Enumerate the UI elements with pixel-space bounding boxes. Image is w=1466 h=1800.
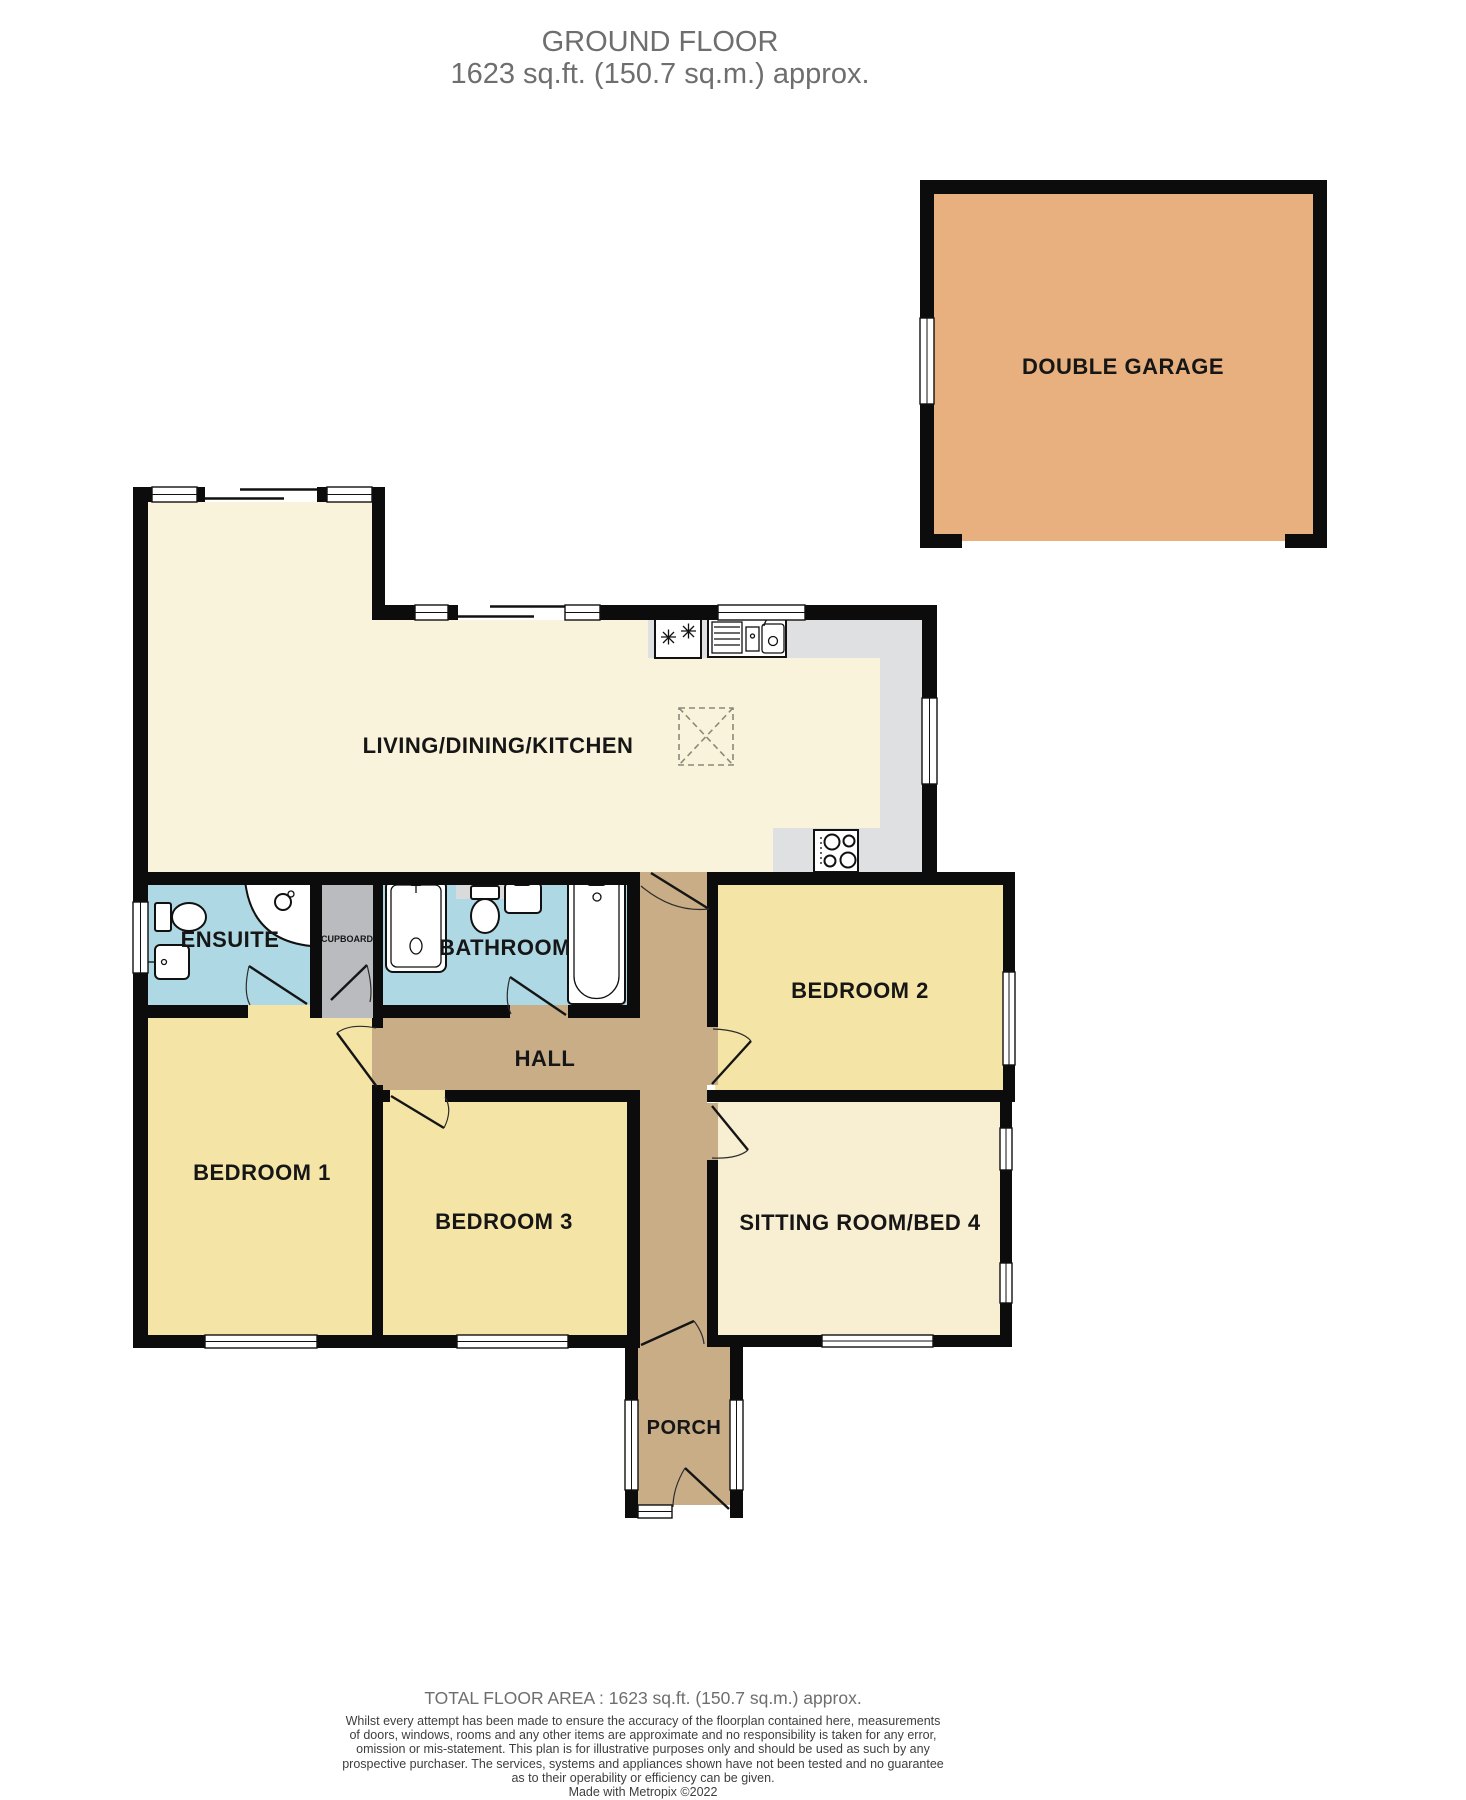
fridge-freezer-icon [655,616,701,658]
room-label-bathroom: BATHROOM [439,935,571,960]
room-label-porch: PORCH [647,1417,722,1439]
room-label-cupboard: CUPBOARD [321,934,374,944]
window [457,1335,568,1348]
window [565,605,600,620]
window [1000,1263,1012,1303]
window [730,1400,743,1490]
room-hall-band [380,1016,642,1092]
room-label-living-dining-kitchen: LIVING/DINING/KITCHEN [363,733,634,758]
floorplan-canvas: DOUBLE GARAGE LIVING/DINING/KITCHEN ENSU… [0,0,1466,1800]
window [205,1335,317,1348]
window [920,318,934,404]
hob-icon [814,830,858,872]
credit-line: Made with Metropix ©2022 [0,1785,1286,1799]
disclaimer-line: prospective purchaser. The services, sys… [0,1757,1286,1771]
floorplan-page: GROUND FLOOR 1623 sq.ft. (150.7 sq.m.) a… [0,0,1466,1800]
room-label-bedroom-3: BEDROOM 3 [435,1209,573,1234]
window [625,1400,638,1490]
window [922,698,937,784]
toilet-icon [471,886,499,933]
window [327,487,372,502]
room-label-sitting-room-bed-4: SITTING ROOM/BED 4 [739,1210,981,1235]
room-cupboard [315,880,375,1008]
room-label-ensuite: ENSUITE [181,927,280,952]
room-label-bedroom-2: BEDROOM 2 [791,978,929,1003]
room-fills [140,187,1320,1510]
room-label-double-garage: DOUBLE GARAGE [1022,354,1224,379]
window [1003,972,1015,1065]
sliding-door-icon [458,605,565,620]
kitchen-sink-icon [708,617,786,657]
shower-tray-icon [386,877,446,972]
disclaimer: Whilst every attempt has been made to en… [0,1714,1286,1799]
window [415,605,448,620]
room-living-dining-kitchen [140,495,930,878]
disclaimer-line: Whilst every attempt has been made to en… [0,1714,1286,1728]
sliding-door-icon [205,487,317,502]
bathtub-icon [568,876,625,1004]
total-floor-area: TOTAL FLOOR AREA : 1623 sq.ft. (150.7 sq… [0,1688,1286,1709]
disclaimer-line: omission or mis-statement. This plan is … [0,1742,1286,1756]
window [152,487,197,502]
window [638,1505,672,1518]
window [718,605,805,620]
disclaimer-line: of doors, windows, rooms and any other i… [0,1728,1286,1742]
room-label-bedroom-1: BEDROOM 1 [193,1160,331,1185]
disclaimer-line: as to their operability or efficiency ca… [0,1771,1286,1785]
room-label-hall: HALL [515,1046,576,1071]
window [133,902,148,973]
room-hall-corridor [640,874,707,1348]
window [822,1335,933,1347]
window [1000,1128,1012,1170]
